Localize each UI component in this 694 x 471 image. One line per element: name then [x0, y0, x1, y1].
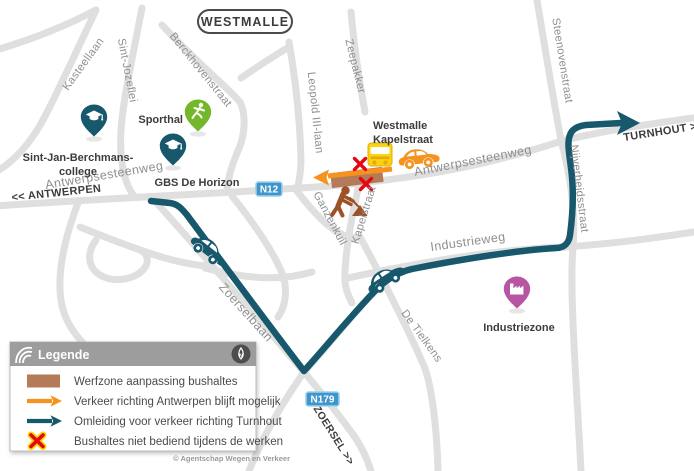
- gbs-school-pin: [160, 134, 186, 166]
- poi-label-college-line2: college: [59, 166, 97, 178]
- bus-stop-label-line2: Kapelstraat: [373, 134, 433, 146]
- compass-icon: N: [232, 345, 251, 364]
- industriezone-pin: [504, 277, 530, 309]
- compass-north-label: N: [239, 354, 243, 360]
- region-title-box: WESTMALLE: [198, 10, 292, 33]
- legend-werfzone-swatch: [27, 375, 60, 388]
- closed-bus-stop-x-north-icon: [355, 159, 366, 170]
- poi-label-industriezone: Industriezone: [483, 322, 555, 334]
- bus-stop-icon: [368, 143, 392, 166]
- road-shield-n179: N179: [306, 392, 339, 406]
- poi-label-college-line1: Sint-Jan-Berchmans-: [23, 152, 134, 164]
- poi-labels: Sporthal Sint-Jan-Berchmans- college GBS…: [23, 114, 555, 334]
- road-leopold-iii-laan: [289, 42, 301, 191]
- legend: Legende N Werfzone aanpassing bushaltes …: [10, 342, 283, 451]
- road-shield-n12-label: N12: [260, 185, 279, 196]
- road-berckhoven-branch: [241, 47, 289, 78]
- bus-stop-label-line1: Westmalle: [373, 120, 427, 132]
- road-shield-n179-label: N179: [311, 395, 335, 406]
- street-label-leopold-iii-laan: Leopold III-laan: [305, 71, 325, 154]
- street-labels: Kasteellaan Sint-Jozeflei Berckhovenstra…: [44, 17, 590, 365]
- legend-item-antwerpen-label: Verkeer richting Antwerpen blijft mogeli…: [74, 396, 281, 408]
- legend-red-x-icon: [31, 435, 43, 447]
- region-title: WESTMALLE: [201, 15, 289, 29]
- legend-item-werfzone-label: Werfzone aanpassing bushaltes: [74, 376, 238, 388]
- westmalle-detour-map: Kasteellaan Sint-Jozeflei Berckhovenstra…: [0, 0, 694, 471]
- college-pin: [81, 105, 107, 137]
- street-label-berckhovenstraat: Berckhovenstraat: [167, 31, 235, 110]
- street-label-zeepakker: Zeepakker: [342, 38, 367, 95]
- map-canvas: Kasteellaan Sint-Jozeflei Berckhovenstra…: [0, 0, 694, 471]
- legend-item-bushaltes-label: Bushaltes niet bediend tijdens de werken: [74, 436, 283, 448]
- poi-label-gbs: GBS De Horizon: [155, 177, 240, 189]
- detour-route: [151, 111, 640, 371]
- poi-label-sporthal: Sporthal: [138, 114, 183, 126]
- road-shield-n12: N12: [256, 182, 282, 196]
- copyright-notice: © Agentschap Wegen en Verkeer: [173, 454, 290, 463]
- sporthal-pin: [185, 100, 211, 132]
- legend-title: Legende: [38, 348, 89, 362]
- legend-item-omleiding-label: Omleiding voor verkeer richting Turnhout: [74, 416, 283, 428]
